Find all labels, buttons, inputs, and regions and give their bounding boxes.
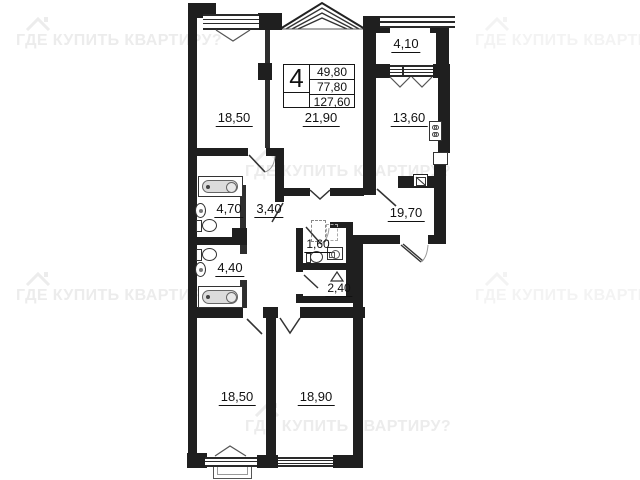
sink-icon bbox=[195, 203, 206, 218]
floorplan-page: { "watermark": { "text": "ГДЕ КУПИТЬ КВА… bbox=[0, 0, 640, 480]
room-area-label-bedroom-bottom-right: 18,90 bbox=[298, 390, 335, 406]
room-area-label-storeroom: 2,40 bbox=[325, 282, 352, 297]
sink-icon bbox=[195, 262, 206, 277]
room-area-label-bathroom-1: 4,70 bbox=[214, 202, 243, 218]
room-area-label-balcony: 4,10 bbox=[391, 37, 420, 53]
toilet-icon bbox=[202, 248, 217, 261]
living-area-value: 49,80 bbox=[310, 65, 354, 80]
floor-plan: 4 49,80 77,80 127,60 18,50 21,90 13,60 4… bbox=[0, 0, 640, 480]
toilet-icon bbox=[310, 251, 323, 263]
room-area-label-bathroom-2: 4,40 bbox=[215, 261, 244, 277]
total-area-value: 127,60 bbox=[310, 95, 354, 109]
room-area-label-hallway: 19,70 bbox=[388, 206, 425, 222]
room-area-label-bedroom-top: 18,50 bbox=[216, 111, 253, 127]
apartment-area-value: 77,80 bbox=[310, 80, 354, 95]
room-area-label-living-room: 21,90 bbox=[303, 111, 340, 127]
room-area-label-kitchen: 13,60 bbox=[391, 111, 428, 127]
room-area-label-corridor: 3,40 bbox=[254, 202, 283, 218]
toilet-icon bbox=[202, 219, 217, 232]
stove-icon bbox=[429, 121, 442, 141]
bathtub-icon bbox=[198, 176, 243, 197]
bathtub-icon bbox=[198, 286, 243, 308]
room-area-label-wc: 1,60 bbox=[304, 238, 331, 253]
apartment-spec-table: 4 49,80 77,80 127,60 bbox=[283, 64, 355, 108]
room-area-label-bedroom-bottom-left: 18,50 bbox=[219, 390, 256, 406]
rooms-count: 4 bbox=[284, 65, 309, 93]
